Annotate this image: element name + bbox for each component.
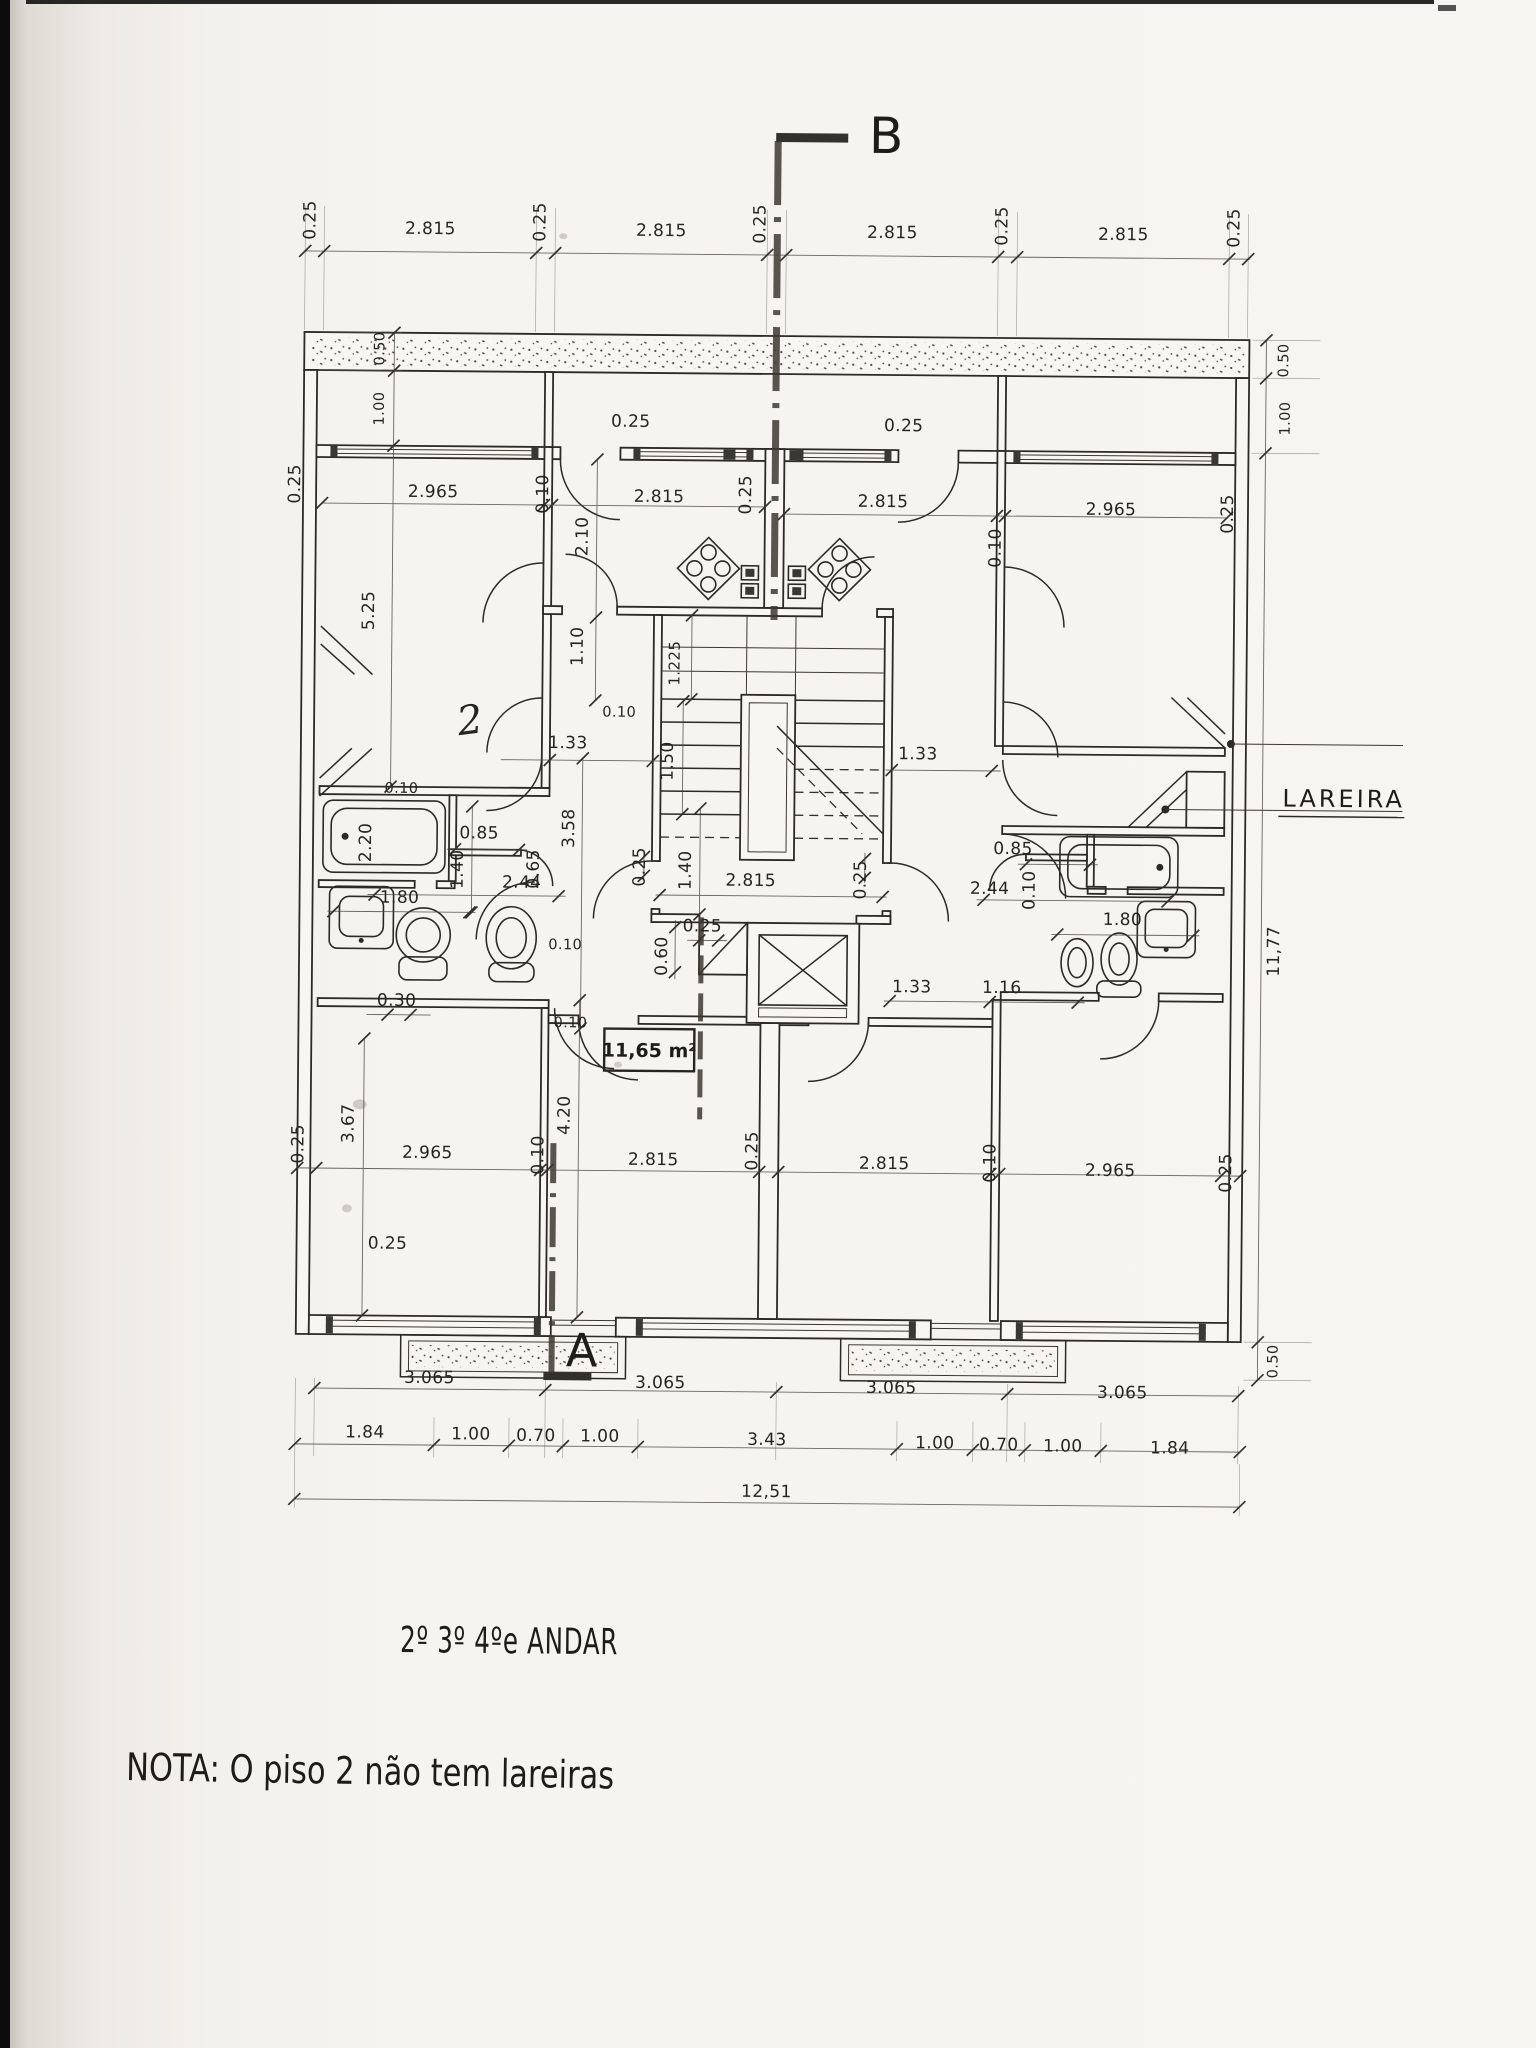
dimension-label: 0.25: [750, 204, 770, 244]
dimension-label: 0.10: [528, 1135, 548, 1175]
dimension-label: 0.25: [884, 416, 924, 436]
dimension-label: 0.25: [1216, 1153, 1236, 1193]
dimension-label: 1.00: [1278, 401, 1294, 435]
dimension-label: 0.85: [993, 839, 1033, 859]
dimension-label: 2.815: [634, 487, 685, 507]
dimension-label: 2.965: [408, 482, 459, 502]
dimension-label: 2.815: [867, 223, 918, 243]
dimension-label: 1.33: [892, 977, 932, 997]
dimension-label: 0.50: [1265, 1344, 1281, 1378]
dimension-label: 1.225: [665, 641, 683, 686]
dimension-label: 1.80: [380, 888, 420, 908]
scanned-page: B A 0.252.8150.252.8150.252.8150.252.815…: [0, 0, 1536, 2048]
dimension-label: 1.16: [982, 978, 1022, 998]
dimension-label: 2.815: [405, 219, 456, 239]
sink-right: [1137, 901, 1195, 958]
dimension-label: 0.10: [980, 1143, 1000, 1183]
dimension-label: 0.50: [1276, 343, 1292, 377]
dimension-label: 3.065: [1097, 1383, 1148, 1403]
dimension-label: 3.43: [747, 1430, 787, 1450]
dimension-label: 0.25: [300, 200, 320, 240]
dimension-label: 0.70: [516, 1426, 556, 1446]
dimension-label: 3.67: [338, 1104, 358, 1144]
dimension-label: 1.33: [548, 733, 588, 753]
dimension-label: 2.965: [1086, 500, 1137, 520]
dimension-label: 0.25: [683, 916, 723, 936]
dimension-label: 1.00: [372, 392, 388, 426]
dimension-label: 0.25: [288, 1124, 308, 1164]
dimension-label: 2.815: [628, 1150, 679, 1170]
room-area-label: 11,65 m²: [602, 1040, 697, 1063]
dimension-label: 2.815: [858, 492, 909, 512]
dimension-label: 0.10: [553, 1015, 587, 1031]
dimension-label: 2.965: [402, 1143, 453, 1163]
toilet-right: [1061, 939, 1093, 987]
dimension-label: 5.25: [359, 591, 379, 631]
dimension-label: 2.20: [356, 823, 376, 863]
dimension-label: 0.25: [530, 202, 550, 242]
dimension-label: 2.10: [573, 517, 593, 557]
dimension-label: 11,77: [1264, 926, 1284, 977]
dimension-label: 3.065: [635, 1373, 686, 1393]
dimension-label: 0.30: [377, 991, 417, 1011]
dimension-label: 0.10: [985, 528, 1005, 568]
dimension-label: 0.25: [736, 475, 756, 515]
dimension-label: 4.20: [555, 1095, 575, 1135]
dimension-label: 0.10: [602, 705, 636, 721]
drawing-title: 2º 3º 4ºe ANDAR: [400, 1620, 618, 1663]
dimension-label: 1.40: [448, 849, 468, 889]
dimension-label: 3.065: [866, 1378, 917, 1398]
bidet-left: [486, 907, 537, 982]
toilet-left: [396, 908, 451, 980]
bathtub-left: [323, 800, 446, 873]
elevator-shaft: [746, 923, 859, 1024]
dimension-label: 0.85: [459, 823, 499, 843]
dimension-label: 0.10: [548, 937, 582, 953]
floor-plan-drawing: B A 0.252.8150.252.8150.252.8150.252.815…: [0, 0, 1536, 2048]
dimension-label: 0.60: [652, 936, 672, 976]
lareira-label: LAREIRA: [1282, 784, 1405, 813]
dimension-label: 1.80: [1103, 910, 1143, 930]
kitchen-stove-left: [677, 537, 740, 600]
dimension-label: 3.58: [559, 808, 579, 848]
section-marker-b: B: [869, 107, 904, 165]
dimension-label: 0.10: [533, 474, 553, 514]
dimension-label: 0.25: [630, 847, 650, 887]
dimension-label: 2.44: [502, 873, 542, 893]
dimension-label: 1.33: [898, 744, 938, 764]
staircase: [660, 615, 885, 861]
dimension-label: 0.70: [979, 1435, 1019, 1455]
dimension-label: 1.00: [1043, 1436, 1083, 1456]
dimension-label: 0.10: [385, 781, 419, 797]
dimension-label: 12,51: [741, 1482, 792, 1502]
dimension-label: 1.00: [915, 1433, 955, 1453]
dimension-label: 2.44: [970, 879, 1010, 899]
dimension-label: 1.50: [658, 741, 678, 781]
dimension-label: 0.25: [1218, 494, 1238, 534]
dimension-label: 2.815: [725, 871, 776, 891]
handwritten-room-number: 2: [453, 696, 485, 745]
dimension-label: 0.25: [742, 1131, 762, 1171]
dimension-label: 0.50: [372, 332, 388, 366]
dimension-label: 3.065: [404, 1368, 455, 1388]
dimension-label: 1.00: [580, 1426, 620, 1446]
balcony-right: [840, 1339, 1065, 1383]
dimension-label: 2.815: [859, 1154, 910, 1174]
dimension-label: 0.25: [992, 206, 1012, 246]
dimension-label: 0.10: [1019, 870, 1039, 910]
section-marker-a: A: [566, 1323, 598, 1377]
dimension-label: 2.965: [1085, 1161, 1136, 1181]
dimension-label: 1.10: [568, 627, 588, 667]
dimension-label: 0.25: [851, 860, 871, 900]
bathtub-right: [1060, 837, 1179, 898]
dimension-label: 0.25: [611, 412, 651, 432]
dimension-label: 1.40: [676, 850, 696, 890]
section-line-a: A: [543, 916, 701, 1381]
bidet-right: [1097, 933, 1142, 997]
dimension-label: 1.00: [451, 1424, 491, 1444]
dimension-label: 0.25: [368, 1234, 408, 1254]
scan-smudges: [342, 231, 630, 1214]
drawing-note: NOTA: O piso 2 não tem lareiras: [126, 1745, 615, 1798]
dimension-label: 0.25: [1224, 208, 1244, 248]
dimension-label: 2.815: [636, 221, 687, 241]
dimension-label: 0.25: [285, 464, 305, 504]
dimension-label: 1.84: [1150, 1438, 1190, 1458]
dimension-label: 2.815: [1098, 225, 1149, 245]
dimension-label: 1.84: [345, 1422, 385, 1442]
lareira-underline: [1278, 816, 1404, 817]
